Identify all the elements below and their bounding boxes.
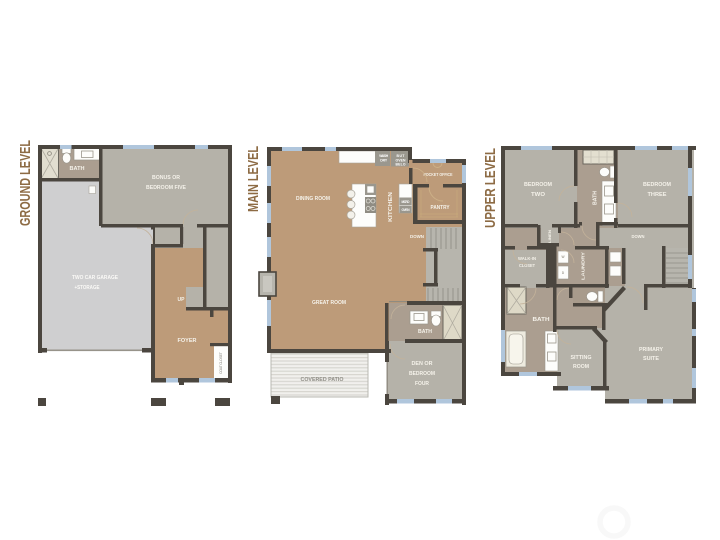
svg-text:PANTRY: PANTRY <box>431 205 450 211</box>
svg-text:DEN OR: DEN OR <box>412 361 433 367</box>
svg-text:ROOM: ROOM <box>573 364 589 370</box>
svg-text:FOYER: FOYER <box>178 338 197 344</box>
svg-text:BATH: BATH <box>593 191 599 205</box>
svg-text:UP: UP <box>178 297 186 303</box>
svg-text:LINEN: LINEN <box>548 230 552 243</box>
svg-text:WALK-IN: WALK-IN <box>518 256 536 261</box>
svg-text:BEDROOM FIVE: BEDROOM FIVE <box>146 185 186 191</box>
svg-text:BEDROOM: BEDROOM <box>524 182 552 188</box>
svg-text:BONUS OR: BONUS OR <box>152 175 181 181</box>
svg-text:MAIN LEVEL: MAIN LEVEL <box>245 146 262 212</box>
svg-text:PRIMARY: PRIMARY <box>639 347 663 353</box>
svg-text:BATH: BATH <box>70 166 85 172</box>
svg-text:OVEN: OVEN <box>402 208 411 212</box>
svg-text:TWO: TWO <box>531 192 545 198</box>
svg-text:BELO: BELO <box>396 163 406 167</box>
svg-text:POCKET OFFICE: POCKET OFFICE <box>424 172 453 177</box>
svg-text:DINING ROOM: DINING ROOM <box>296 196 330 202</box>
svg-text:GREAT ROOM: GREAT ROOM <box>312 300 346 306</box>
svg-text:GROUND LEVEL: GROUND LEVEL <box>17 140 34 226</box>
svg-text:SITTING: SITTING <box>571 355 592 361</box>
svg-text:BATH: BATH <box>418 329 432 335</box>
svg-text:DOWN: DOWN <box>632 234 645 239</box>
svg-text:BEDROOM: BEDROOM <box>643 182 671 188</box>
svg-text:DRY: DRY <box>380 159 388 163</box>
svg-text:KITCHEN: KITCHEN <box>388 192 394 222</box>
svg-text:+STORAGE: +STORAGE <box>75 285 100 291</box>
svg-text:LAUNDRY: LAUNDRY <box>581 252 586 280</box>
svg-text:COAT CLOSET: COAT CLOSET <box>219 351 223 374</box>
svg-text:DOWN: DOWN <box>410 234 425 239</box>
svg-text:THREE: THREE <box>648 192 667 198</box>
svg-text:BATH: BATH <box>533 317 550 323</box>
svg-text:W: W <box>561 255 564 259</box>
svg-text:COVERED PATIO: COVERED PATIO <box>301 377 344 383</box>
svg-text:MICRO: MICRO <box>402 200 411 204</box>
svg-text:BEDROOM: BEDROOM <box>409 371 435 377</box>
svg-text:WASH: WASH <box>379 154 389 158</box>
svg-text:BUT: BUT <box>397 154 406 158</box>
svg-text:CLOSET: CLOSET <box>519 263 535 268</box>
svg-text:SUITE: SUITE <box>643 356 659 362</box>
svg-text:UPPER LEVEL: UPPER LEVEL <box>482 148 499 228</box>
svg-text:FOUR: FOUR <box>415 381 429 387</box>
svg-text:TWO CAR GARAGE: TWO CAR GARAGE <box>72 275 118 281</box>
